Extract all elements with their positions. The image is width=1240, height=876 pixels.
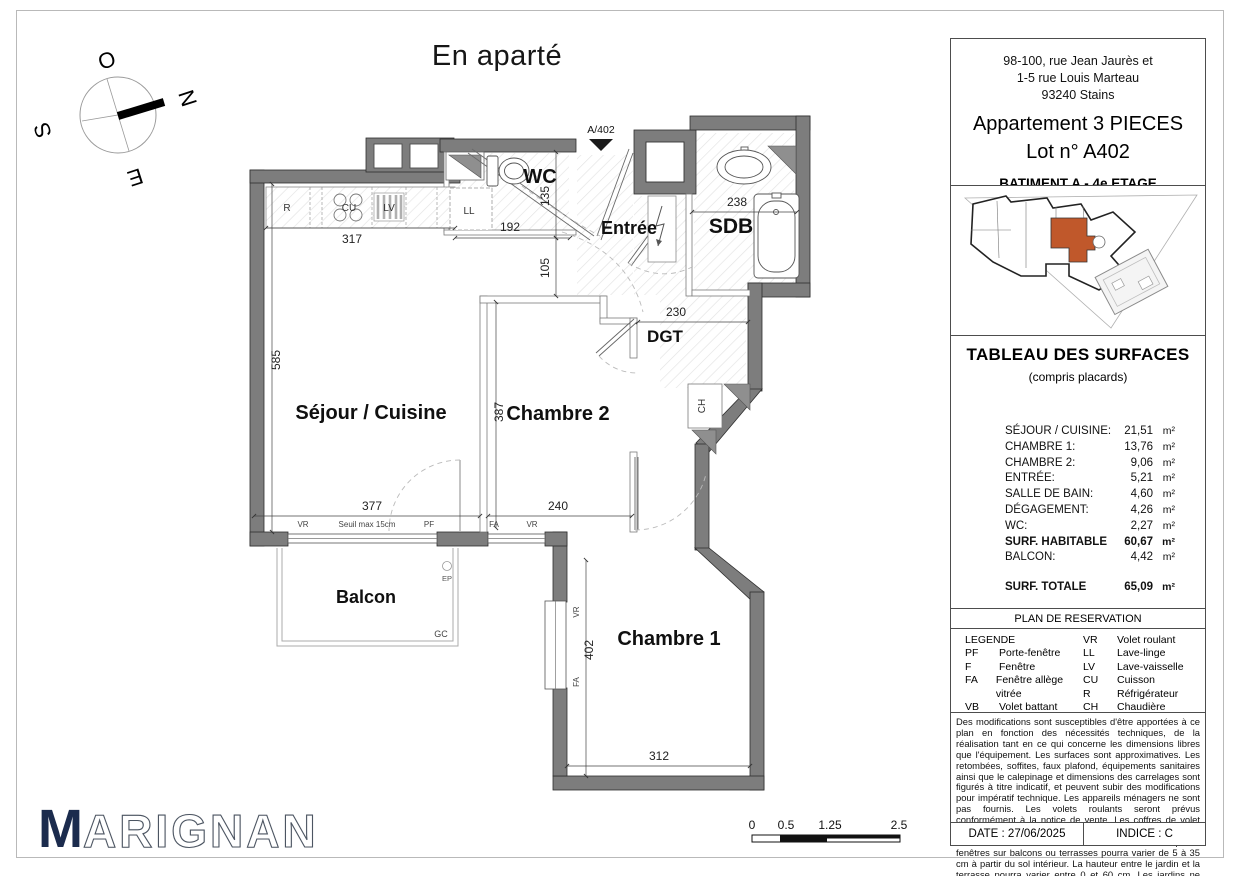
- surface-row: ENTRÉE:5,21m²: [951, 471, 1205, 487]
- kitchen-counter: R CU LV: [266, 187, 455, 228]
- room-label-balcon: Balcon: [336, 587, 396, 607]
- dim-sdb: 238: [727, 195, 747, 209]
- surface-total-row: SURF. TOTALE65,09m²: [951, 580, 1205, 596]
- compass-rose: O N S E: [28, 46, 201, 192]
- label-gc: GC: [434, 629, 448, 639]
- surface-row: SÉJOUR / CUISINE:21,51m²: [951, 424, 1205, 440]
- legend-box: LEGENDE PFPorte-fenêtre FFenêtre FAFenêt…: [950, 628, 1206, 713]
- compass-north: N: [173, 87, 202, 110]
- lot-number: Lot n° A402: [951, 141, 1205, 164]
- logo-m: M: [38, 799, 83, 859]
- washer-label: LL: [463, 206, 475, 217]
- date-cell: DATE : 27/06/2025: [951, 823, 1084, 845]
- dim-sejour-width: 377: [362, 499, 382, 513]
- bathtub-icon: [754, 193, 799, 278]
- scale-tick-05: 0.5: [778, 818, 795, 832]
- room-label-dgt: DGT: [647, 327, 684, 346]
- surfaces-title: TABLEAU DES SURFACES: [951, 345, 1205, 365]
- room-label-sdb: SDB: [709, 215, 753, 238]
- compass-south: S: [28, 119, 56, 141]
- legend-item: FFenêtre: [965, 661, 1083, 674]
- label-pf: PF: [424, 520, 434, 529]
- reservation-title: PLAN DE RESERVATION: [1014, 613, 1141, 625]
- duct-shaft: [646, 142, 684, 182]
- legend-header: LEGENDE: [965, 634, 1083, 647]
- reservation-title-box: PLAN DE RESERVATION: [950, 608, 1206, 629]
- compass-west: O: [95, 46, 119, 75]
- scale-tick-0: 0: [749, 818, 756, 832]
- kitchen-window-2: [410, 144, 438, 168]
- legend-item: RRéfrigérateur: [1083, 688, 1197, 701]
- ep-label: EP: [442, 574, 452, 583]
- dim-chambre2-height: 387: [492, 402, 506, 422]
- legend-item: LVLave-vaisselle: [1083, 661, 1197, 674]
- address-line-1: 98-100, rue Jean Jaurès et: [951, 53, 1205, 70]
- dim-chambre1-height: 402: [582, 640, 596, 660]
- legend-item: PFPorte-fenêtre: [965, 647, 1083, 660]
- room-label-sejour: Séjour / Cuisine: [295, 402, 446, 424]
- dim-kitchen: 317: [342, 232, 362, 246]
- site-plan: [951, 186, 1205, 335]
- disclaimer-box: Des modifications sont susceptibles d'êt…: [950, 712, 1206, 823]
- legend-item: LLLave-linge: [1083, 647, 1197, 660]
- indice-cell: INDICE : C: [1084, 823, 1205, 845]
- surfaces-subtitle: (compris placards): [951, 370, 1205, 384]
- scale-tick-25: 2.5: [891, 818, 908, 832]
- entrance-marker: A/402: [587, 124, 615, 151]
- label-seuil: Seuil max 15cm: [339, 520, 396, 529]
- dim-chambre2-width: 240: [548, 499, 568, 513]
- dim-dgt: 230: [666, 305, 686, 319]
- lot-info-box: 98-100, rue Jean Jaurès et 1-5 rue Louis…: [950, 38, 1206, 186]
- surface-row: CHAMBRE 2:9,06m²: [951, 456, 1205, 472]
- lot-marker-label: A/402: [587, 124, 615, 136]
- surface-row: CHAMBRE 1:13,76m²: [951, 440, 1205, 456]
- disclaimer-text: Des modifications sont susceptibles d'êt…: [951, 713, 1205, 876]
- label-fa-2: FA: [572, 676, 581, 686]
- label-vr-1: VR: [297, 520, 308, 529]
- label-fa-1: FA: [489, 520, 499, 529]
- room-label-chambre2: Chambre 2: [506, 403, 609, 425]
- dim-chambre1-width: 312: [649, 749, 669, 763]
- apartment-type: Appartement 3 PIECES: [951, 113, 1205, 136]
- scale-bar: 0 0.5 1.25 2.5: [749, 818, 908, 842]
- site-detail-circle: [1093, 236, 1105, 248]
- dim-sejour-height: 585: [269, 350, 283, 370]
- address-line-2: 1-5 rue Louis Marteau: [951, 70, 1205, 87]
- label-vr-3: VR: [572, 606, 581, 617]
- logo-wordmark: ARIGNAN: [83, 805, 319, 857]
- scale-tick-125: 1.25: [818, 818, 842, 832]
- room-label-chambre1: Chambre 1: [617, 628, 720, 650]
- dim-wc-height: 135: [538, 186, 552, 206]
- surfaces-box: TABLEAU DES SURFACES (compris placards) …: [950, 335, 1206, 609]
- address-line-3: 93240 Stains: [951, 87, 1205, 104]
- boiler-label: CH: [697, 399, 708, 413]
- washer-box: LL: [450, 188, 492, 230]
- fridge-label: R: [283, 203, 290, 214]
- dishwasher-label: LV: [383, 203, 395, 214]
- compass-needle: [118, 102, 164, 116]
- kitchen-window-1: [374, 144, 402, 168]
- legend-item: CUCuisson: [1083, 674, 1197, 687]
- surface-balcon-row: BALCON:4,42m²: [951, 550, 1205, 566]
- label-vr-2: VR: [526, 520, 537, 529]
- surface-row: DÉGAGEMENT:4,26m²: [951, 503, 1205, 519]
- legend-item: FAFenêtre allège vitrée: [965, 674, 1083, 701]
- footer-box: DATE : 27/06/2025 INDICE : C: [950, 822, 1206, 846]
- rainwater-pipe: EP: [442, 562, 452, 584]
- compass-east: E: [124, 163, 146, 191]
- plan-sheet: En aparté O N S E: [0, 0, 1240, 876]
- boiler-closet: CH: [688, 384, 722, 428]
- surface-row: WC:2,27m²: [951, 519, 1205, 535]
- room-label-wc: WC: [523, 166, 556, 188]
- dim-hall: 105: [538, 258, 552, 278]
- dim-wc-width: 192: [500, 220, 520, 234]
- site-plan-box: [950, 185, 1206, 336]
- room-label-entree: Entrée: [601, 218, 657, 238]
- legend-item: VRVolet roulant: [1083, 634, 1197, 647]
- surface-row: SALLE DE BAIN:4,60m²: [951, 487, 1205, 503]
- hob-label: CU: [342, 203, 356, 214]
- marignan-logo: MARIGNAN: [38, 798, 319, 860]
- surfaces-table: SÉJOUR / CUISINE:21,51m² CHAMBRE 1:13,76…: [951, 424, 1205, 596]
- surface-habitable-row: SURF. HABITABLE60,67m²: [951, 535, 1205, 551]
